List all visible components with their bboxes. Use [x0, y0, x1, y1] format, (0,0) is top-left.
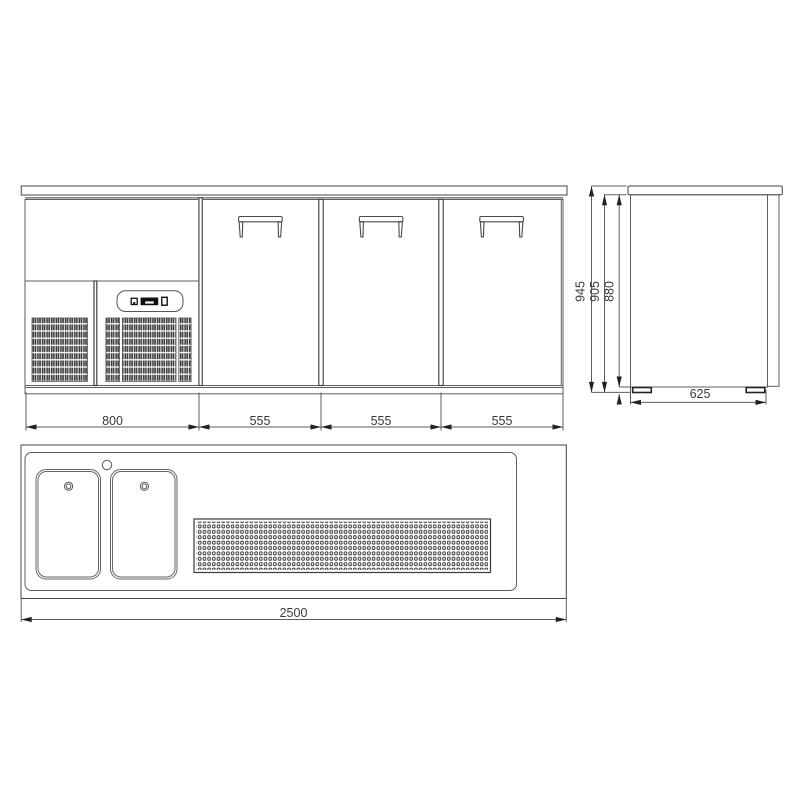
svg-text:555: 555 — [250, 414, 271, 428]
svg-text:905: 905 — [588, 281, 602, 302]
svg-text:945: 945 — [573, 281, 587, 302]
svg-text:800: 800 — [102, 414, 123, 428]
svg-text:555: 555 — [492, 414, 513, 428]
svg-text:625: 625 — [690, 387, 711, 401]
svg-text:2500: 2500 — [280, 606, 308, 620]
svg-text:880: 880 — [603, 281, 617, 302]
svg-text:555: 555 — [371, 414, 392, 428]
